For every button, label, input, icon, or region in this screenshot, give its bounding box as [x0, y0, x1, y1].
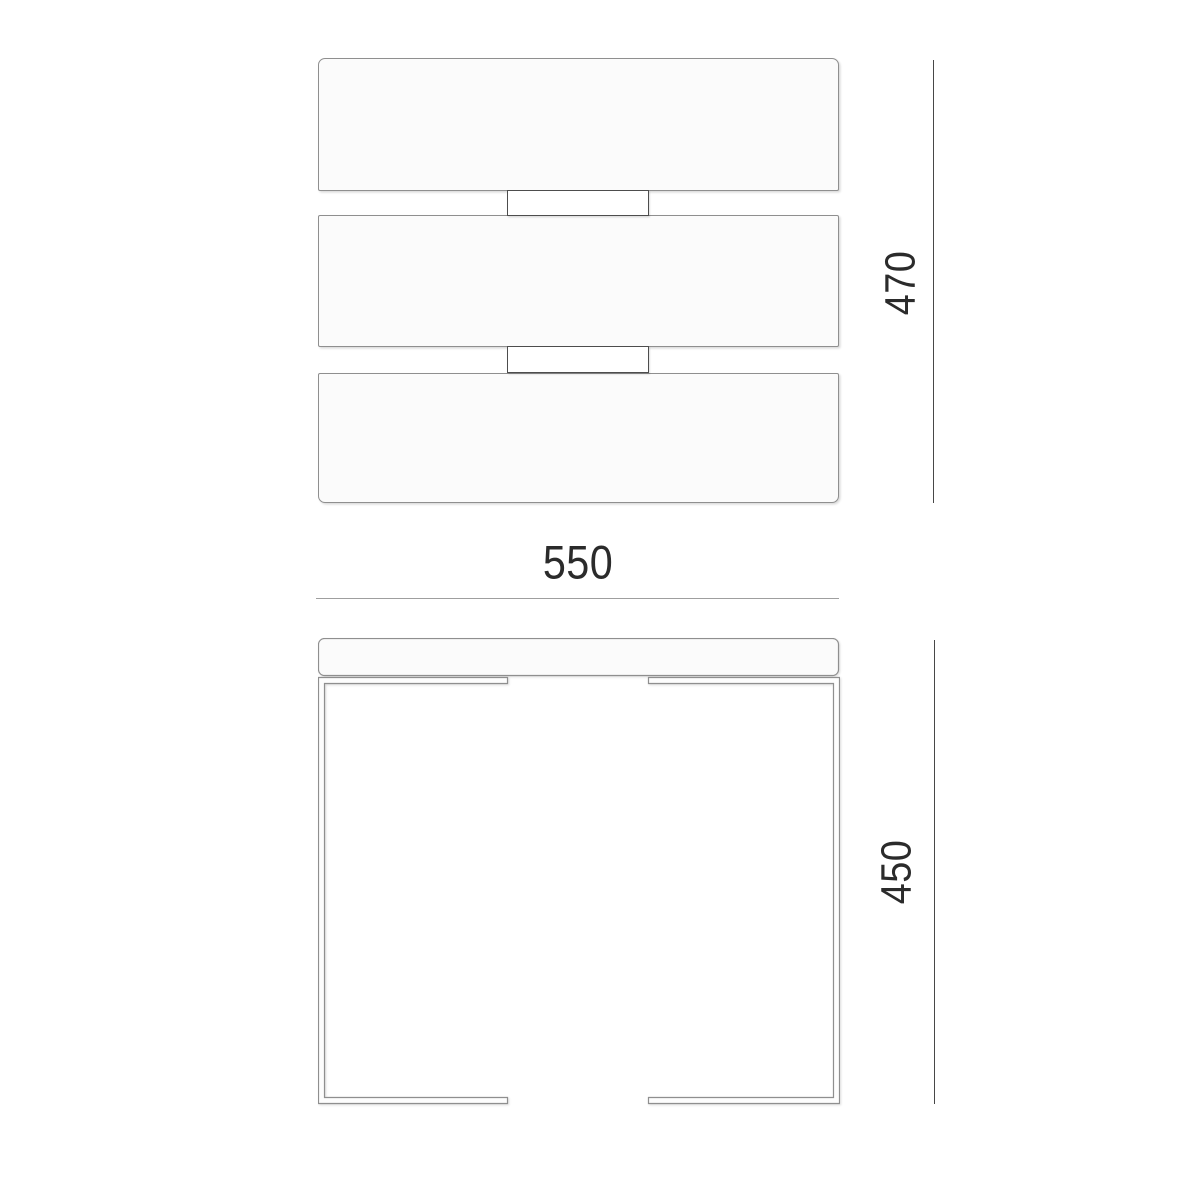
drawer-handle-bottom: [507, 346, 649, 373]
depth-dimension-line: [934, 640, 935, 1104]
left-side-profile: [319, 678, 508, 1104]
drawer-front-bottom: [318, 373, 839, 503]
drawer-front-middle: [318, 215, 839, 347]
drawer-front-top: [318, 58, 839, 191]
plan-section-view: [318, 638, 840, 1105]
furniture-dimension-drawing: 470 550 450: [0, 0, 1200, 1200]
drawer-handle-top: [507, 190, 649, 216]
tabletop-outline: [319, 639, 839, 676]
depth-dimension-label: 450: [876, 840, 919, 904]
width-dimension-label: 550: [543, 539, 613, 586]
height-dimension-line: [933, 60, 934, 503]
width-dimension-line: [316, 598, 839, 599]
height-dimension-label: 470: [880, 251, 923, 315]
right-side-profile: [649, 678, 840, 1104]
